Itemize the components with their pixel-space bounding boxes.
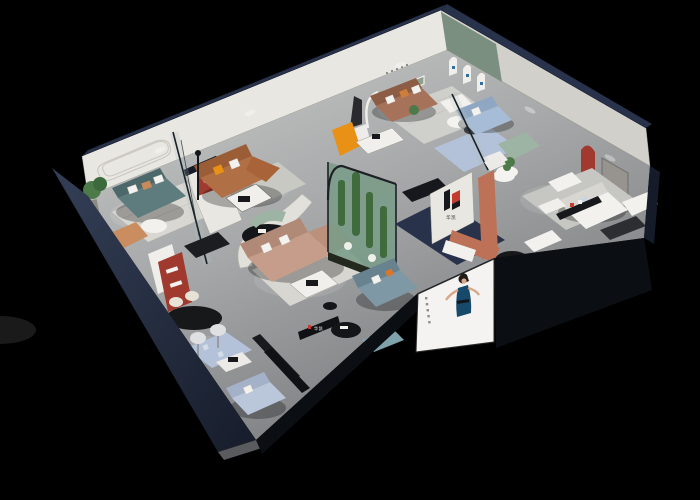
showroom-render: 华凯 华凯 [0, 0, 700, 500]
black-vase [323, 302, 337, 310]
cream-stool-b [185, 291, 199, 301]
desk-plant [409, 105, 419, 115]
wall-strip-text: 华凯 [314, 325, 324, 332]
dining-round-table [493, 170, 515, 182]
round-coffee-table [141, 219, 167, 233]
bar-chair-a [190, 332, 206, 344]
black-side-table-round [331, 322, 361, 338]
brand-logo-text: 华凯 [446, 214, 456, 221]
bar-chair-b [210, 324, 226, 336]
cream-stool-a [169, 297, 183, 307]
scene-canvas: 华凯 华凯 [0, 0, 700, 500]
